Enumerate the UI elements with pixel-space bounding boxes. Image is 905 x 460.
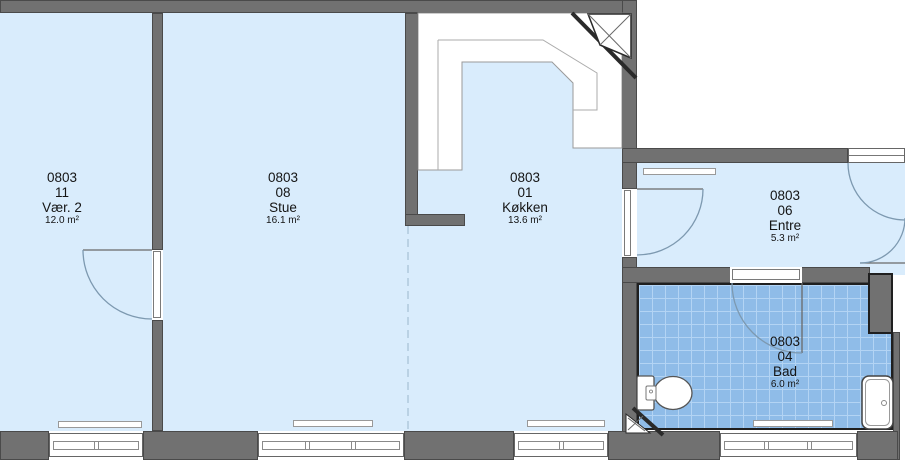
wall-bottom-1	[0, 431, 49, 460]
wall-entre-top	[622, 148, 848, 163]
room-number: 11	[0, 185, 132, 200]
room-label-bad: 0803 04 Bad 6.0 m²	[715, 334, 855, 391]
window-icon-stue	[258, 433, 404, 457]
window-sill-koekken	[527, 420, 605, 427]
window-mullion	[305, 441, 310, 450]
room-building-no: 0803	[715, 334, 855, 349]
window-band	[724, 441, 853, 450]
room-name: Vær. 2	[0, 200, 132, 215]
room-area: 13.6 m²	[455, 215, 595, 227]
room-label-vaer2: 0803 11 Vær. 2 12.0 m²	[0, 170, 132, 227]
wall-vaer2-stue-lower	[152, 320, 163, 431]
room-number: 04	[715, 349, 855, 364]
room-name: Entre	[715, 218, 855, 233]
window-sill-stue	[293, 420, 373, 427]
window-icon-vaer2	[49, 433, 143, 457]
window-mullion	[94, 441, 99, 450]
room-area: 5.3 m²	[715, 233, 855, 245]
wall-bad-notch	[868, 273, 893, 334]
window-band	[262, 441, 400, 450]
entry-opening	[848, 148, 905, 163]
room-name: Køkken	[455, 200, 595, 215]
wall-bottom-4	[608, 431, 720, 460]
wall-bottom-5	[857, 431, 898, 460]
room-building-no: 0803	[213, 170, 353, 185]
room-name: Stue	[213, 200, 353, 215]
towel-rail-bad	[753, 420, 833, 427]
wall-bottom-3	[404, 431, 514, 460]
wall-top	[0, 0, 637, 13]
room-building-no: 0803	[0, 170, 132, 185]
door-leaf-closed-bad	[732, 269, 800, 280]
wall-koekken-right-lower	[622, 257, 637, 432]
room-number: 06	[715, 203, 855, 218]
window-icon-bad	[720, 433, 857, 457]
door-leaf-closed-vaer2	[153, 251, 161, 318]
room-number: 08	[213, 185, 353, 200]
window-mullion	[807, 441, 812, 450]
room-label-entre: 0803 06 Entre 5.3 m²	[715, 188, 855, 245]
room-name: Bad	[715, 364, 855, 379]
wall-stue-koekken	[405, 13, 418, 225]
window-icon-koekken	[514, 433, 608, 457]
door-leaf-closed-koekken-entre	[624, 190, 631, 256]
wall-bottom-2	[143, 431, 258, 460]
room-label-koekken: 0803 01 Køkken 13.6 m²	[455, 170, 595, 227]
window-sill-entre	[643, 168, 716, 175]
room-label-stue: 0803 08 Stue 16.1 m²	[213, 170, 353, 227]
window-mullion	[351, 441, 356, 450]
room-area: 16.1 m²	[213, 215, 353, 227]
room-building-no: 0803	[455, 170, 595, 185]
entry-opening-line	[849, 155, 904, 156]
window-mullion	[559, 441, 564, 450]
window-mullion	[764, 441, 769, 450]
room-number: 01	[455, 185, 595, 200]
room-area: 6.0 m²	[715, 379, 855, 391]
wall-vaer2-stue-upper	[152, 13, 163, 250]
window-sill-vaer2	[58, 421, 142, 428]
room-building-no: 0803	[715, 188, 855, 203]
room-area: 12.0 m²	[0, 215, 132, 227]
floor-plan: 0803 11 Vær. 2 12.0 m² 0803 08 Stue 16.1…	[0, 0, 905, 460]
